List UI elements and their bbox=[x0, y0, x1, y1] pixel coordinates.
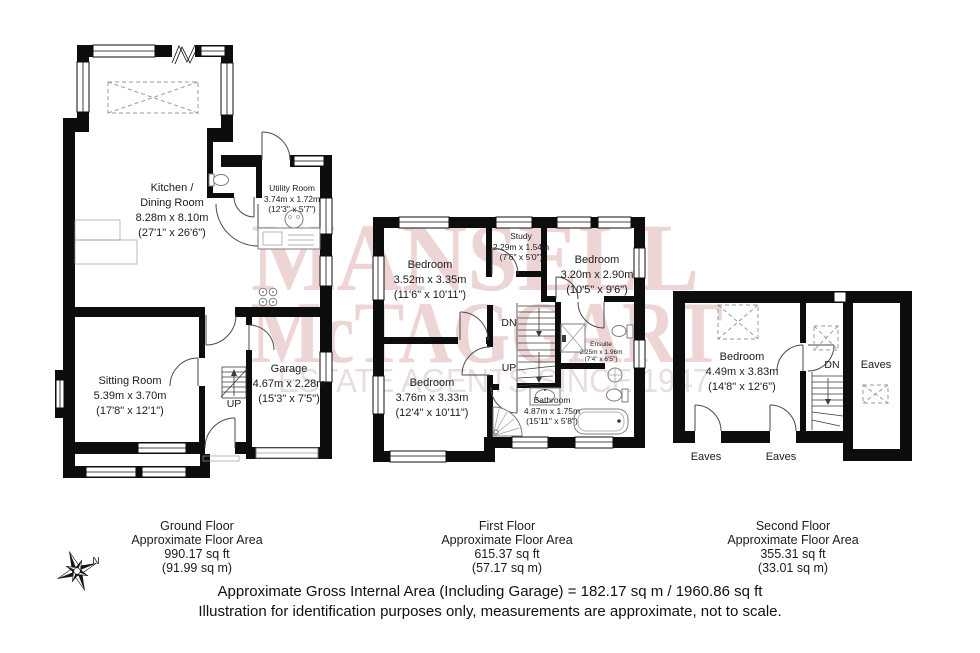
corner-shower-icon bbox=[493, 407, 522, 436]
footer-disclaimer: Illustration for identification purposes… bbox=[0, 603, 980, 620]
eaves-label-right: Eaves bbox=[861, 359, 892, 371]
room-label-kitchen-dining: Kitchen / Dining Room 8.28m x 8.10m (27'… bbox=[136, 181, 209, 241]
room-label-ensuite: Ensuite 2.25m x 1.96m (7'4" x 6'5") bbox=[580, 341, 623, 364]
caption-ground-floor: Ground Floor Approximate Floor Area 990.… bbox=[131, 519, 262, 575]
window-icon bbox=[834, 292, 846, 302]
rooflight-icon bbox=[108, 82, 198, 113]
footer-gross-area: Approximate Gross Internal Area (Includi… bbox=[0, 583, 980, 600]
room-label-bathroom: Bathroom 4.87m x 1.75m (15'11" x 5'8") bbox=[524, 395, 580, 427]
room-label-bedroom-2: Bedroom 3.20m x 2.90m (10'5" x 9'6") bbox=[561, 253, 634, 298]
floorplan-page: MANSELL McTAGGART ESTATE AGENTS SINCE 19… bbox=[0, 0, 980, 653]
room-label-bedroom-3: Bedroom 3.76m x 3.33m (12'4" x 10'11") bbox=[396, 376, 469, 421]
stairs-icon bbox=[221, 367, 247, 398]
caption-second-floor: Second Floor Approximate Floor Area 355.… bbox=[727, 519, 858, 575]
stairs-dn-label: DN bbox=[501, 317, 516, 329]
stairs-up-label: UP bbox=[227, 398, 242, 410]
toilet-icon bbox=[209, 174, 229, 186]
compass-north-label: N bbox=[92, 556, 99, 567]
room-label-sitting: Sitting Room 5.39m x 3.70m (17'8" x 12'1… bbox=[94, 374, 167, 419]
zigzag-break-icon bbox=[172, 45, 198, 64]
eaves-label-bottom-left: Eaves bbox=[691, 451, 722, 463]
eaves-label-bottom-mid: Eaves bbox=[766, 451, 797, 463]
room-label-utility: Utility Room 3.74m x 1.72m (12'3" x 5'7"… bbox=[264, 183, 320, 215]
garage-door-icon bbox=[256, 448, 318, 458]
room-label-bedroom-1: Bedroom 3.52m x 3.35m (11'6" x 10'11") bbox=[394, 258, 467, 303]
room-label-garage: Garage 4.67m x 2.28m (15'3" x 7'5") bbox=[253, 362, 326, 407]
bathtub-icon bbox=[574, 409, 628, 434]
stairs-up-label: UP bbox=[502, 362, 517, 374]
room-label-study: Study 2.29m x 1.54m (7'6" x 5'0") bbox=[493, 231, 549, 263]
caption-first-floor: First Floor Approximate Floor Area 615.3… bbox=[441, 519, 572, 575]
room-label-bedroom-4: Bedroom 4.49m x 3.83m (14'8" x 12'6") bbox=[706, 350, 779, 395]
stairs-dn-label: DN bbox=[824, 359, 839, 371]
stairs-icon bbox=[812, 372, 843, 430]
